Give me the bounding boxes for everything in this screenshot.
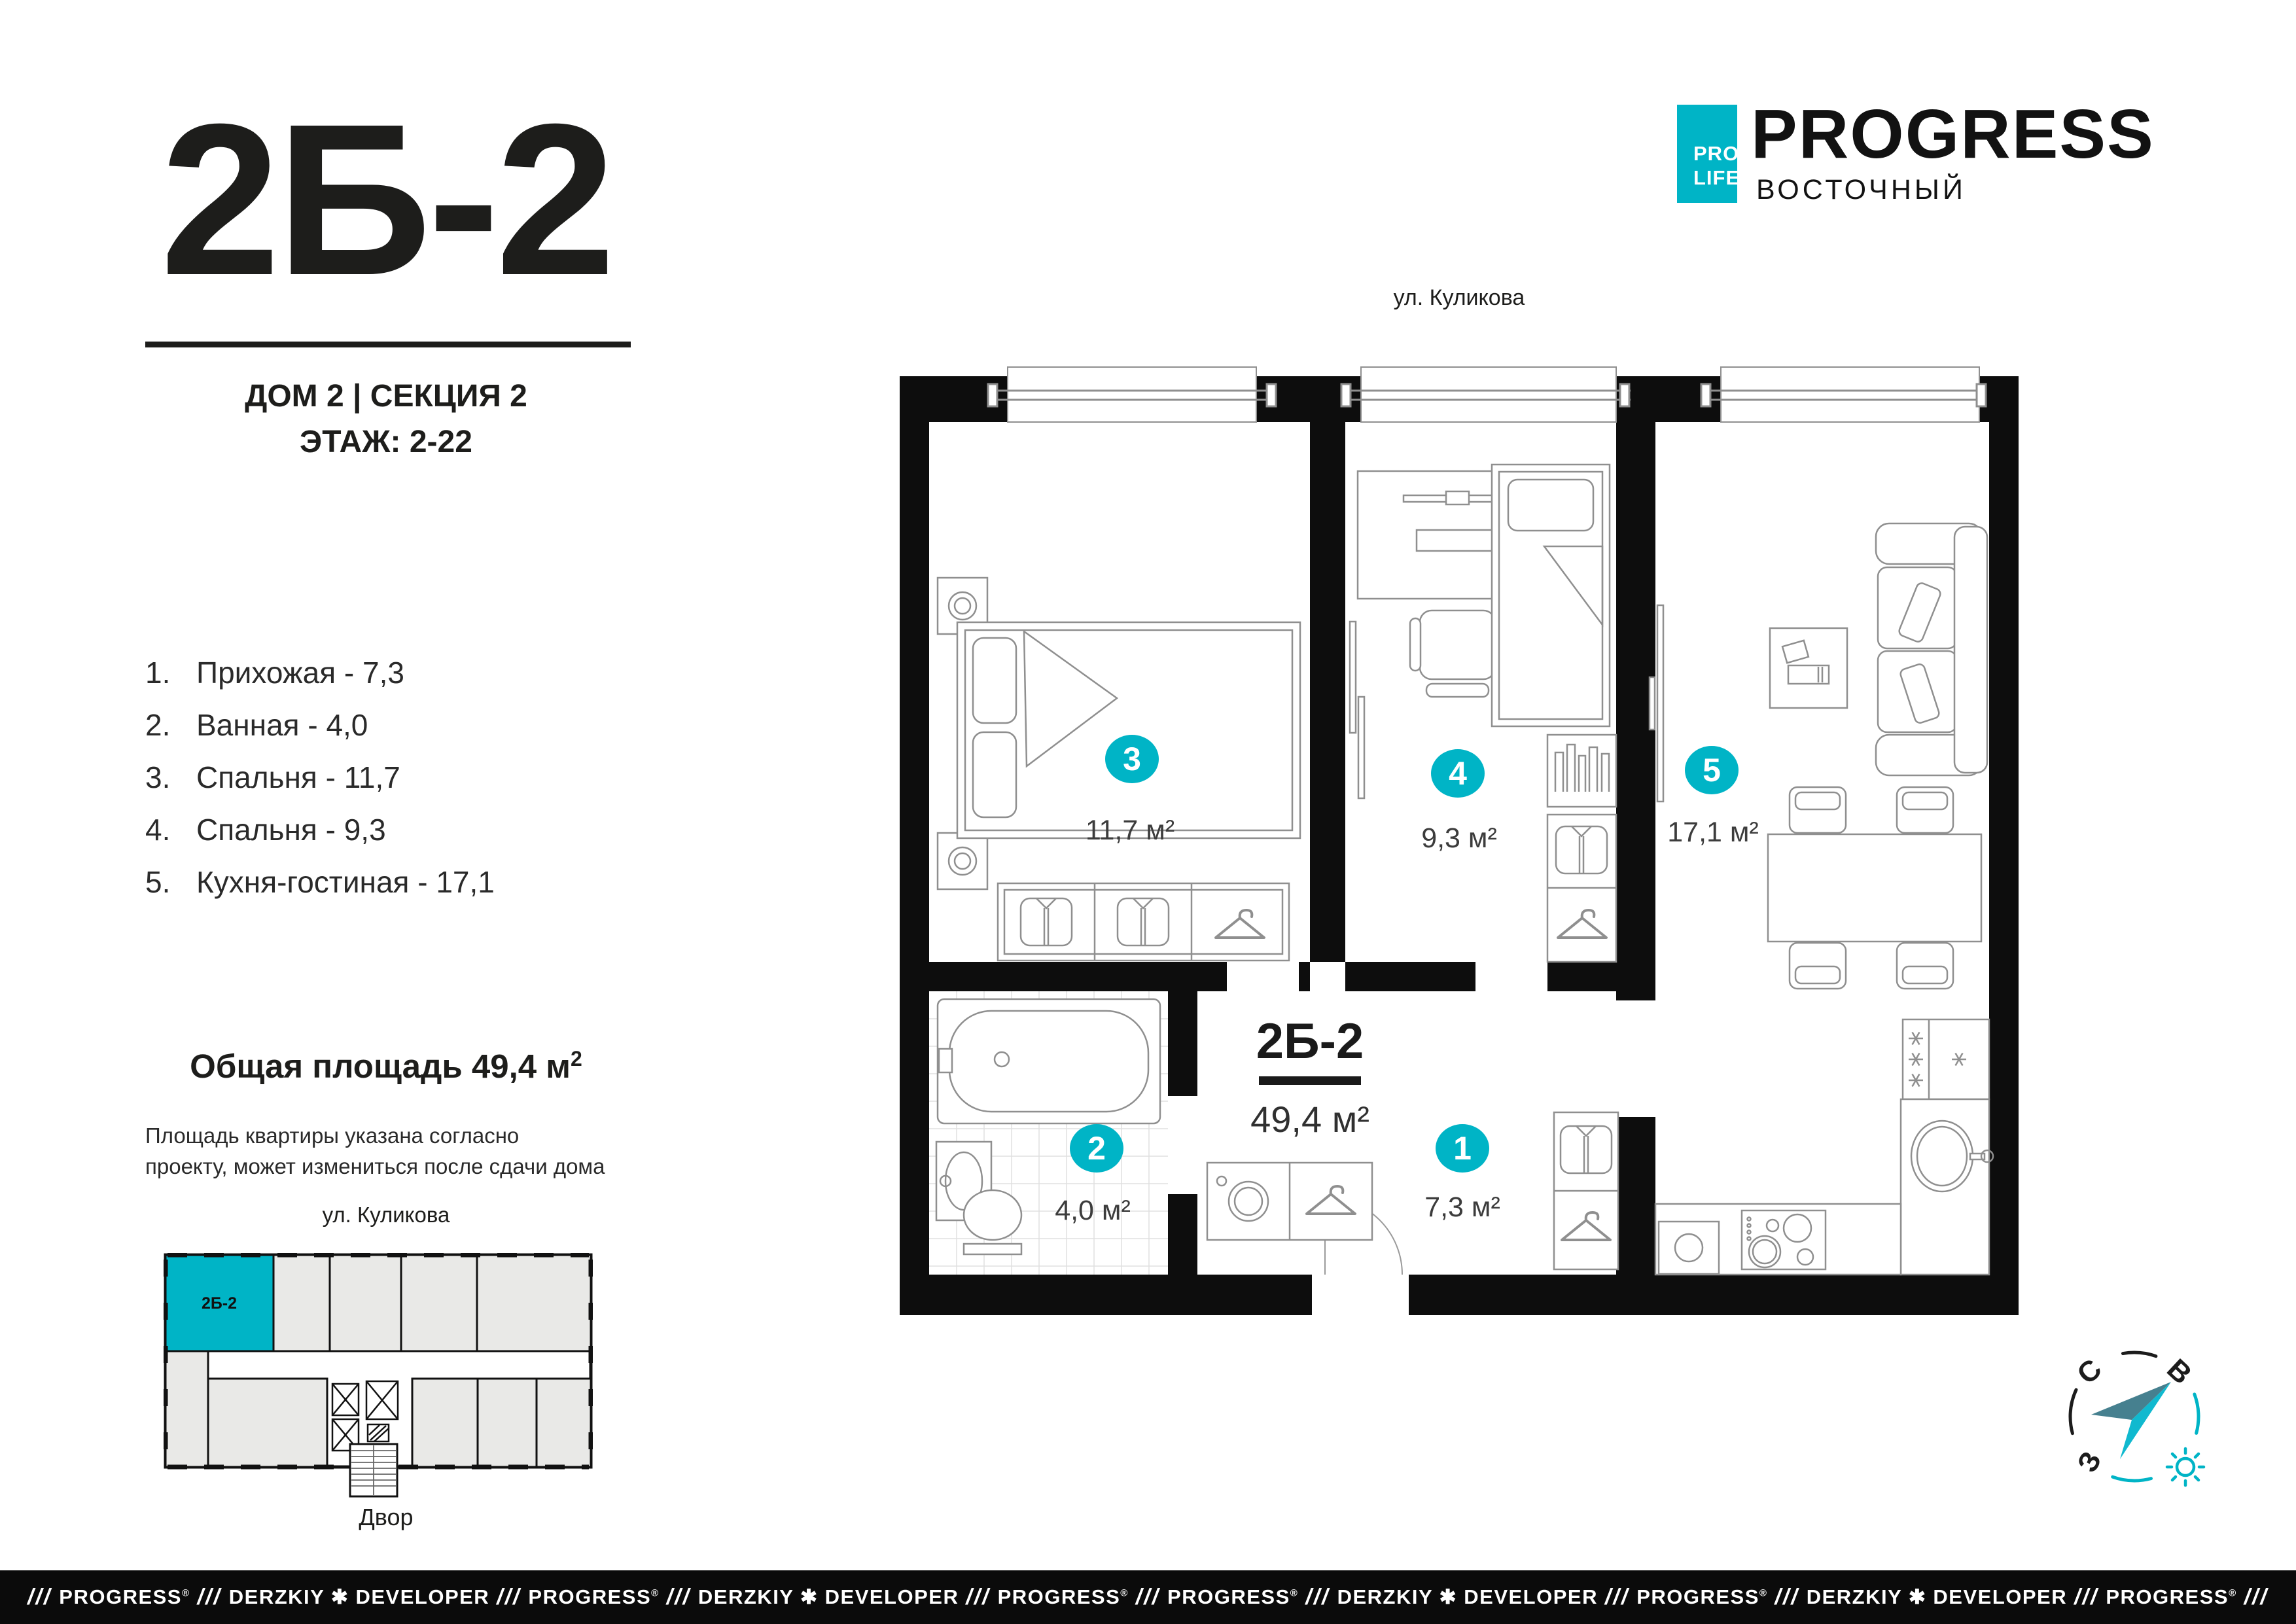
room-number: 4. bbox=[145, 812, 196, 847]
room-number: 2. bbox=[145, 707, 196, 743]
logo-pro: PRO bbox=[1693, 141, 1740, 166]
footer-separator: /// bbox=[1305, 1585, 1330, 1610]
footer-brand-label: PROGRESS® bbox=[2106, 1585, 2236, 1609]
badge-5-area: 17,1 м² bbox=[1667, 817, 1759, 848]
plan-center-label: 2Б-2 49,4 м² bbox=[1250, 1014, 1369, 1140]
compass-needle-dark bbox=[2091, 1382, 2171, 1420]
badge-4-number: 4 bbox=[1449, 755, 1467, 792]
room-label: Ванная - 4,0 bbox=[196, 707, 368, 743]
footer-brand-label: DERZKIY ✱ DEVELOPER bbox=[229, 1585, 489, 1609]
pro-life-logo-text: PRO LIFE bbox=[1693, 141, 1740, 190]
total-area-heading: Общая площадь 49,4 м2 bbox=[85, 1047, 687, 1086]
footer-brand-label: DERZKIY ✱ DEVELOPER bbox=[698, 1585, 959, 1609]
mini-section-plan: 2Б-2 bbox=[164, 1253, 593, 1502]
floor-plan: 1 7,3 м² 2 4,0 м² 3 11,7 м² 4 9,3 м² 5 1… bbox=[900, 330, 2019, 1315]
footer-separator: /// bbox=[497, 1585, 521, 1610]
badge-3-area: 11,7 м² bbox=[1086, 815, 1174, 846]
kitchen-living-furniture bbox=[1650, 523, 1993, 1275]
floor-line: ЭТАЖ: 2-22 bbox=[85, 424, 687, 460]
room-number: 1. bbox=[145, 655, 196, 690]
room-list-item: 4. Спальня - 9,3 bbox=[145, 803, 495, 856]
badge-1-number: 1 bbox=[1453, 1130, 1472, 1167]
brand-district: ВОСТОЧНЫЙ bbox=[1756, 174, 1966, 206]
title-divider bbox=[145, 342, 631, 347]
compass-icon: С В З bbox=[2048, 1328, 2244, 1518]
pro-life-logo-badge: PRO LIFE bbox=[1677, 105, 1737, 203]
plan-apartment-code: 2Б-2 bbox=[1256, 1014, 1364, 1069]
footer-brand-label: PROGRESS® bbox=[1167, 1585, 1298, 1609]
disclaimer-line-1: Площадь квартиры указана согласно bbox=[145, 1120, 669, 1151]
footer-separator: /// bbox=[2074, 1585, 2098, 1610]
room-list-item: 2. Ванная - 4,0 bbox=[145, 699, 495, 751]
badge-2-number: 2 bbox=[1087, 1130, 1106, 1167]
badge-2-area: 4,0 м² bbox=[1055, 1195, 1131, 1226]
footer-brand-bar: ///PROGRESS®///DERZKIY ✱ DEVELOPER///PRO… bbox=[0, 1570, 2296, 1624]
room-label: Кухня-гостиная - 17,1 bbox=[196, 864, 495, 900]
bedroom4-furniture bbox=[1350, 465, 1616, 962]
brand-name: PROGRESS bbox=[1751, 98, 2155, 170]
logo-life: LIFE bbox=[1693, 166, 1740, 190]
street-label-plan: ул. Куликова bbox=[900, 285, 2019, 311]
footer-separator: /// bbox=[667, 1585, 691, 1610]
footer-separator: /// bbox=[966, 1585, 990, 1610]
building-section-line: ДОМ 2 | СЕКЦИЯ 2 bbox=[85, 378, 687, 414]
street-label-left: ул. Куликова bbox=[85, 1203, 687, 1227]
badge-5-number: 5 bbox=[1703, 752, 1721, 788]
apartment-code-title: 2Б-2 bbox=[85, 98, 687, 301]
footer-brand-label: PROGRESS® bbox=[998, 1585, 1129, 1609]
footer-separator: /// bbox=[1775, 1585, 1799, 1610]
flyer-canvas: 2Б-2 ДОМ 2 | СЕКЦИЯ 2 ЭТАЖ: 2-22 1. Прих… bbox=[0, 0, 2296, 1624]
disclaimer-line-2: проекту, может измениться после сдачи до… bbox=[145, 1151, 669, 1182]
badge-1-area: 7,3 м² bbox=[1424, 1192, 1500, 1223]
area-disclaimer: Площадь квартиры указана согласно проект… bbox=[145, 1120, 669, 1182]
yard-label: Двор bbox=[85, 1504, 687, 1531]
total-area-text: Общая площадь 49,4 м bbox=[190, 1048, 571, 1085]
room-list-item: 1. Прихожая - 7,3 bbox=[145, 646, 495, 699]
footer-brand-label: PROGRESS® bbox=[59, 1585, 190, 1609]
footer-brand-label: PROGRESS® bbox=[528, 1585, 659, 1609]
sun-icon bbox=[2167, 1449, 2204, 1485]
footer-separator: /// bbox=[198, 1585, 222, 1610]
badge-3-number: 3 bbox=[1123, 741, 1141, 777]
plan-total-area: 49,4 м² bbox=[1250, 1099, 1369, 1140]
total-area-sup: 2 bbox=[571, 1047, 582, 1070]
plan-windows bbox=[988, 367, 1986, 422]
mini-plan-unit-label: 2Б-2 bbox=[202, 1294, 237, 1313]
footer-separator: /// bbox=[1136, 1585, 1160, 1610]
footer-brand-label: DERZKIY ✱ DEVELOPER bbox=[1337, 1585, 1598, 1609]
room-list: 1. Прихожая - 7,3 2. Ванная - 4,0 3. Спа… bbox=[145, 646, 495, 908]
footer-brand-label: DERZKIY ✱ DEVELOPER bbox=[1807, 1585, 2067, 1609]
room-list-item: 3. Спальня - 11,7 bbox=[145, 751, 495, 803]
room-label: Спальня - 9,3 bbox=[196, 812, 386, 847]
room-label: Прихожая - 7,3 bbox=[196, 655, 404, 690]
room-number: 5. bbox=[145, 864, 196, 900]
compass-west: З bbox=[2071, 1447, 2108, 1477]
footer-brand-label: PROGRESS® bbox=[1636, 1585, 1767, 1609]
room-list-item: 5. Кухня-гостиная - 17,1 bbox=[145, 856, 495, 908]
badge-4-area: 9,3 м² bbox=[1421, 822, 1497, 854]
room-label: Спальня - 11,7 bbox=[196, 760, 400, 795]
footer-separator: /// bbox=[2244, 1585, 2269, 1610]
room-number: 3. bbox=[145, 760, 196, 795]
footer-separator: /// bbox=[27, 1585, 52, 1610]
footer-separator: /// bbox=[1605, 1585, 1629, 1610]
compass-north: С bbox=[2071, 1353, 2108, 1391]
